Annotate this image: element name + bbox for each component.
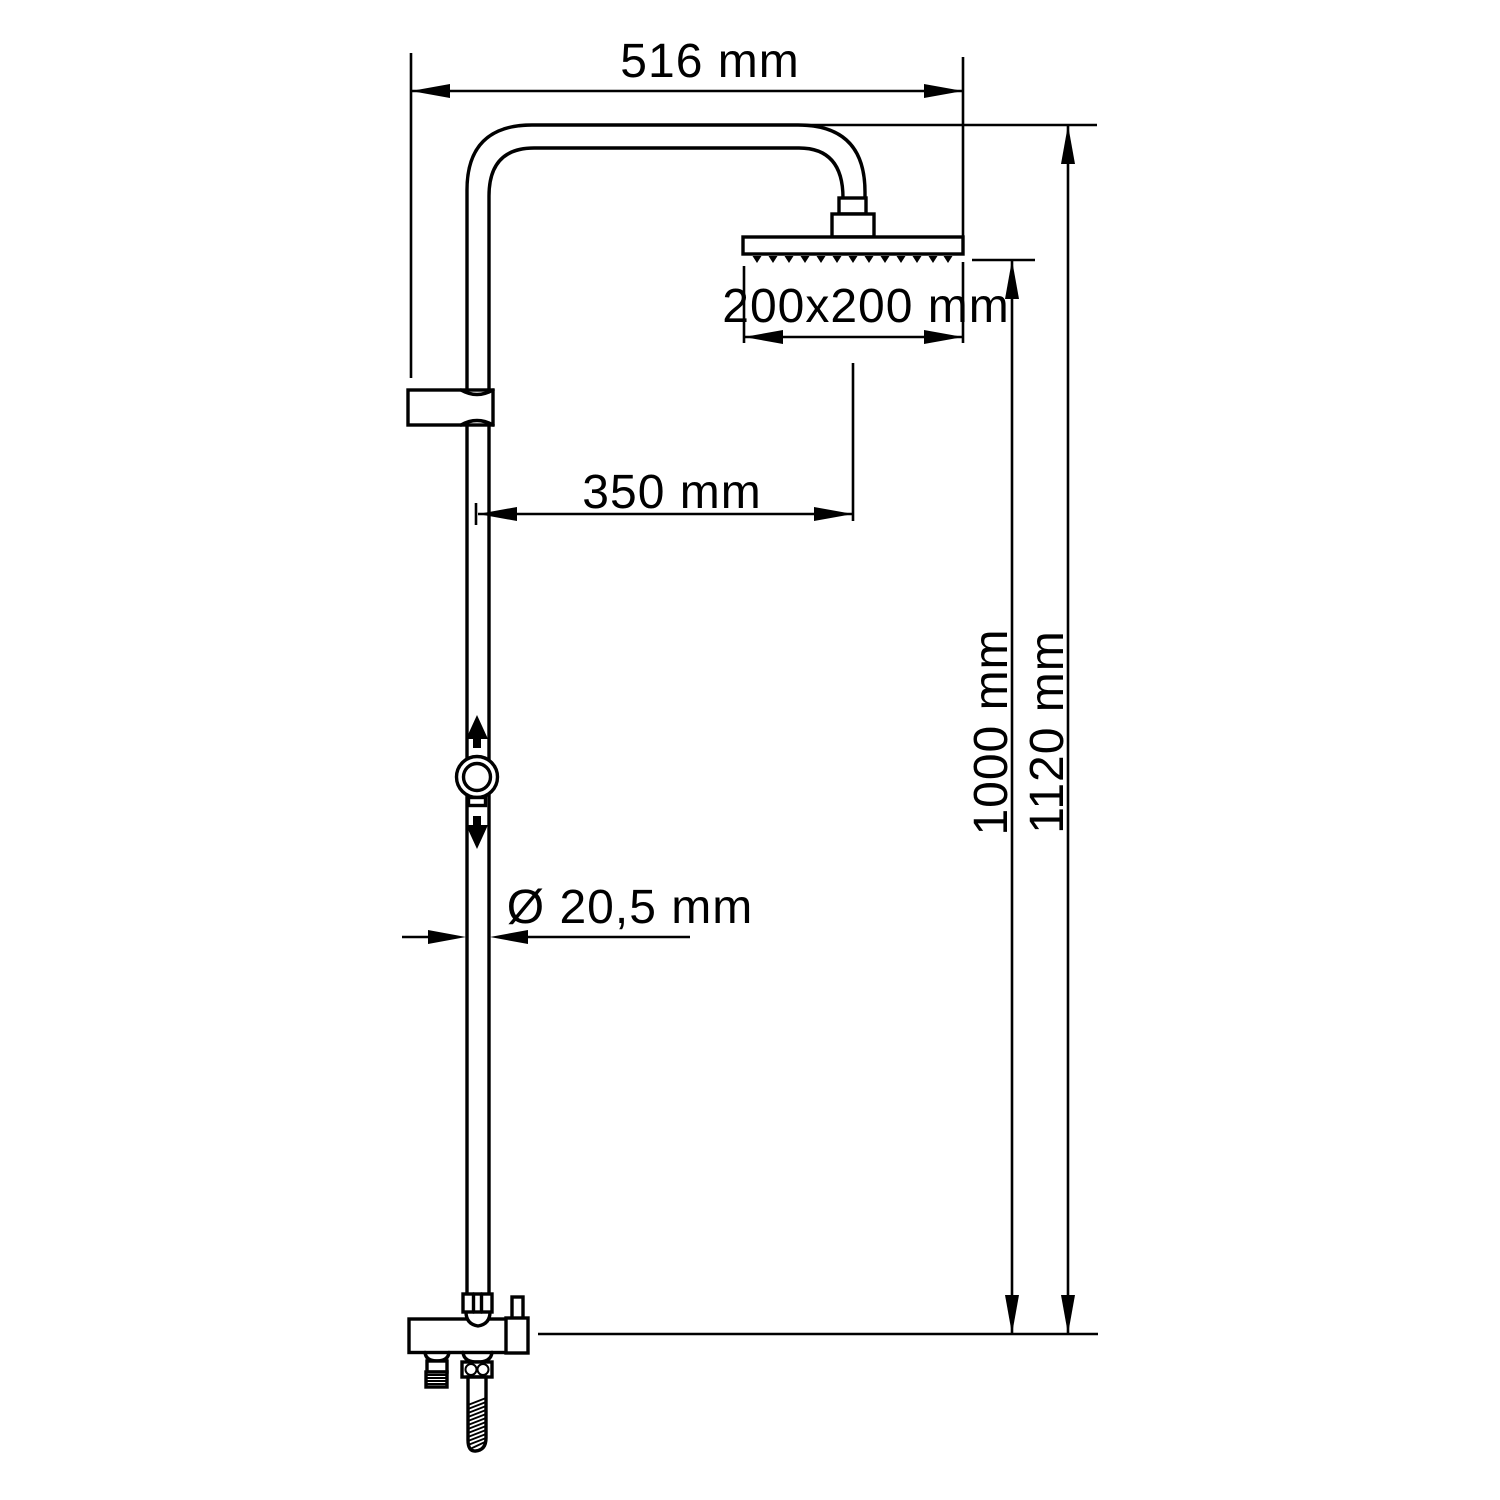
head-connector-lower	[832, 214, 874, 237]
head-connector-upper	[839, 198, 866, 214]
wall-bracket	[408, 390, 493, 425]
hand-shower-outlet	[462, 1353, 492, 1452]
head-plate	[743, 237, 963, 254]
drawing-background	[0, 0, 1500, 1500]
pipe-nut	[463, 1294, 492, 1312]
holder-tab	[469, 798, 486, 806]
dim-label-1000: 1000 mm	[965, 628, 1018, 835]
dim-label-516: 516 mm	[620, 35, 799, 88]
dim-label-200x200: 200x200 mm	[722, 280, 1009, 333]
diverter-pin	[512, 1297, 523, 1319]
dim-label-350: 350 mm	[582, 466, 761, 519]
technical-drawing-canvas: 516 mm 200x200 mm 350 mm Ø 20,5 mm 1000 …	[0, 0, 1500, 1500]
dim-label-1120: 1120 mm	[1021, 630, 1074, 834]
dim-label-diameter: Ø 20,5 mm	[507, 881, 753, 934]
mixer-right-block	[506, 1318, 528, 1353]
holder-inner-ring	[464, 764, 491, 791]
shower-column-diagram: 516 mm 200x200 mm 350 mm Ø 20,5 mm 1000 …	[0, 0, 1500, 1500]
